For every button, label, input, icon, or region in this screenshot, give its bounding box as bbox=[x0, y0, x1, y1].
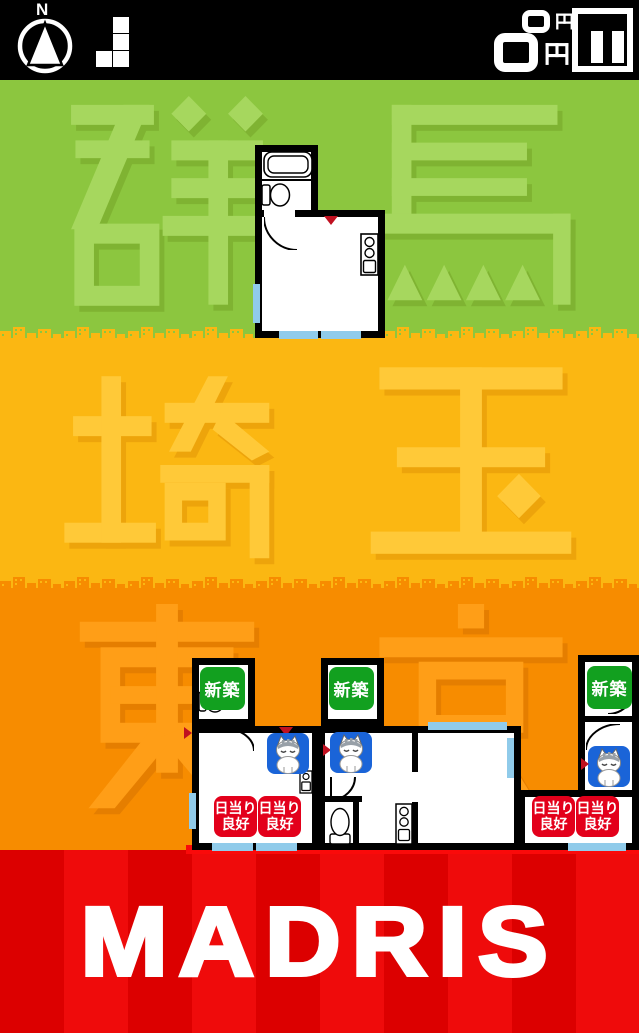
kanji-tama-graphic bbox=[362, 354, 580, 576]
tetromino-block bbox=[113, 17, 129, 33]
entrance-marker-icon bbox=[581, 758, 589, 770]
window bbox=[279, 331, 318, 339]
kanji-tama bbox=[362, 354, 580, 576]
bathtub-icon bbox=[263, 151, 313, 178]
pet-ok-badge bbox=[588, 746, 630, 787]
cat-icon bbox=[268, 734, 308, 774]
compass-icon bbox=[17, 18, 73, 74]
interior-wall bbox=[583, 716, 635, 722]
window bbox=[568, 843, 626, 851]
tetromino-block bbox=[96, 51, 112, 67]
entrance-marker-icon bbox=[184, 727, 192, 739]
window bbox=[428, 722, 507, 730]
score-secondary-digit bbox=[522, 10, 550, 33]
good-sunlight-line2: 良好 bbox=[222, 817, 250, 833]
good-sunlight-line2: 良好 bbox=[540, 817, 568, 833]
kanji-uma-graphic bbox=[370, 96, 588, 318]
compass-north-label: N bbox=[36, 0, 48, 20]
new-construction-label: 新築 bbox=[205, 676, 241, 701]
score-primary bbox=[494, 33, 568, 72]
kitchen-unit-icon bbox=[395, 803, 413, 845]
good-sunlight-line1: 日当り bbox=[215, 801, 257, 817]
kitchen-unit-icon bbox=[360, 233, 379, 276]
pet-ok-badge bbox=[330, 732, 372, 773]
good-sunlight-line2: 良好 bbox=[266, 817, 294, 833]
good-sunlight-line2: 良好 bbox=[584, 817, 612, 833]
score-primary-digit bbox=[494, 33, 538, 72]
window bbox=[189, 793, 196, 829]
pet-ok-badge bbox=[267, 733, 309, 774]
toilet-icon bbox=[261, 182, 291, 208]
new-construction-label: 新築 bbox=[334, 676, 370, 701]
good-sunlight-badge: 日当り 良好 bbox=[214, 796, 257, 837]
kanji-gun-graphic bbox=[58, 96, 276, 318]
tetromino-block bbox=[113, 51, 129, 67]
kanji-gun bbox=[58, 96, 276, 318]
door-arc-icon bbox=[264, 217, 297, 250]
yen-unit-icon bbox=[544, 41, 570, 67]
pause-icon bbox=[591, 31, 603, 63]
good-sunlight-badge: 日当り 良好 bbox=[258, 796, 301, 837]
door-arc-icon bbox=[226, 729, 254, 751]
score-secondary bbox=[522, 10, 574, 33]
window bbox=[507, 738, 514, 778]
window bbox=[256, 843, 297, 851]
good-sunlight-line1: 日当り bbox=[259, 801, 301, 817]
window bbox=[253, 284, 260, 323]
new-construction-badge: 新築 bbox=[587, 666, 632, 709]
kanji-sai-graphic bbox=[60, 354, 278, 576]
pause-icon bbox=[612, 31, 624, 63]
window bbox=[212, 843, 253, 851]
hud-bar: N bbox=[0, 0, 639, 80]
good-sunlight-line1: 日当り bbox=[577, 801, 619, 817]
good-sunlight-badge: 日当り 良好 bbox=[576, 796, 619, 837]
door-opening bbox=[264, 210, 295, 217]
window bbox=[321, 331, 361, 339]
cat-icon bbox=[589, 747, 629, 787]
next-piece-icon bbox=[96, 17, 130, 68]
pause-button[interactable] bbox=[572, 8, 633, 72]
interior-wall bbox=[353, 798, 359, 850]
tetromino-block bbox=[113, 34, 129, 50]
good-sunlight-badge: 日当り 良好 bbox=[532, 796, 575, 837]
game-screen: 新築 bbox=[0, 0, 639, 1033]
interior-wall bbox=[412, 733, 418, 772]
new-construction-badge: 新築 bbox=[200, 667, 245, 710]
new-construction-badge: 新築 bbox=[329, 667, 374, 710]
new-construction-label: 新築 bbox=[592, 675, 628, 700]
kanji-sai bbox=[60, 354, 278, 576]
toilet-icon bbox=[329, 806, 351, 846]
entrance-marker-icon bbox=[324, 216, 338, 225]
bathroom-divider-wall bbox=[262, 179, 312, 181]
cat-icon bbox=[331, 733, 371, 773]
game-logo: MADRIS bbox=[0, 882, 639, 1002]
kanji-uma bbox=[370, 96, 588, 318]
good-sunlight-line1: 日当り bbox=[533, 801, 575, 817]
skyline-divider-saitama bbox=[0, 574, 639, 590]
